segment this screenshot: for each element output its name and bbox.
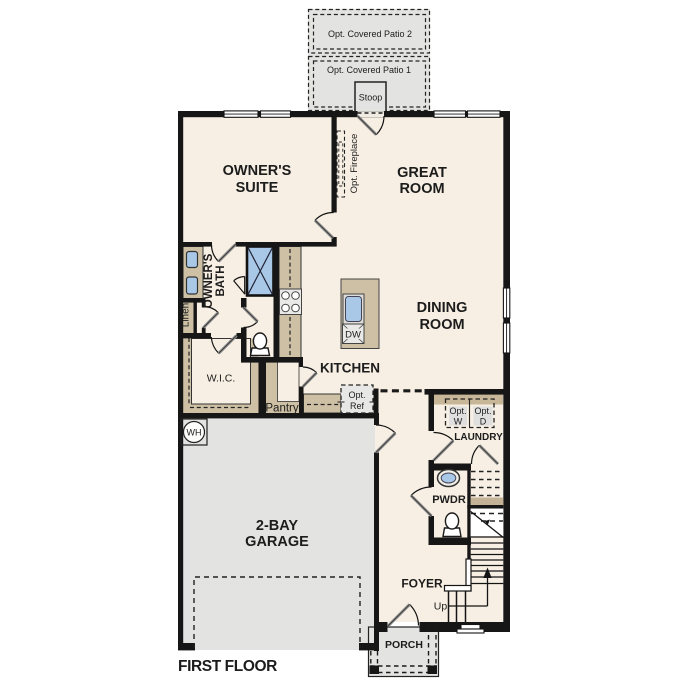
svg-text:OWNER'S: OWNER'S bbox=[223, 163, 292, 179]
svg-text:Linen: Linen bbox=[181, 303, 192, 327]
svg-text:Opt.: Opt. bbox=[449, 406, 466, 416]
svg-text:LAUNDRY: LAUNDRY bbox=[454, 432, 503, 443]
svg-text:Opt. Covered Patio 2: Opt. Covered Patio 2 bbox=[328, 29, 412, 39]
svg-text:OWNER'S: OWNER'S bbox=[203, 253, 215, 308]
svg-text:Up: Up bbox=[434, 601, 448, 613]
svg-text:Pantry: Pantry bbox=[265, 403, 298, 415]
svg-text:BATH: BATH bbox=[215, 265, 227, 296]
svg-text:D: D bbox=[480, 417, 487, 427]
svg-text:GREAT: GREAT bbox=[397, 165, 447, 181]
svg-text:KITCHEN: KITCHEN bbox=[320, 361, 380, 376]
svg-text:WH: WH bbox=[187, 428, 202, 438]
svg-text:Opt.: Opt. bbox=[474, 406, 491, 416]
svg-text:W: W bbox=[454, 417, 463, 427]
svg-text:W.I.C.: W.I.C. bbox=[207, 373, 236, 385]
svg-text:FOYER: FOYER bbox=[401, 577, 443, 591]
svg-text:Ref: Ref bbox=[350, 401, 365, 411]
svg-text:ROOM: ROOM bbox=[399, 181, 444, 197]
svg-text:PWDR: PWDR bbox=[432, 494, 466, 506]
svg-text:ROOM: ROOM bbox=[419, 317, 464, 333]
svg-text:DINING: DINING bbox=[417, 300, 468, 316]
svg-text:PORCH: PORCH bbox=[385, 639, 423, 651]
svg-text:GARAGE: GARAGE bbox=[245, 534, 309, 550]
svg-text:2-BAY: 2-BAY bbox=[256, 518, 299, 534]
svg-text:DW: DW bbox=[345, 330, 361, 341]
svg-text:Opt. Fireplace: Opt. Fireplace bbox=[349, 134, 360, 194]
svg-text:SUITE: SUITE bbox=[236, 180, 279, 196]
svg-text:Opt. Covered Patio 1: Opt. Covered Patio 1 bbox=[327, 65, 411, 75]
svg-text:Stoop: Stoop bbox=[359, 93, 383, 103]
svg-text:FIRST FLOOR: FIRST FLOOR bbox=[178, 658, 277, 675]
svg-text:Opt.: Opt. bbox=[348, 390, 365, 400]
